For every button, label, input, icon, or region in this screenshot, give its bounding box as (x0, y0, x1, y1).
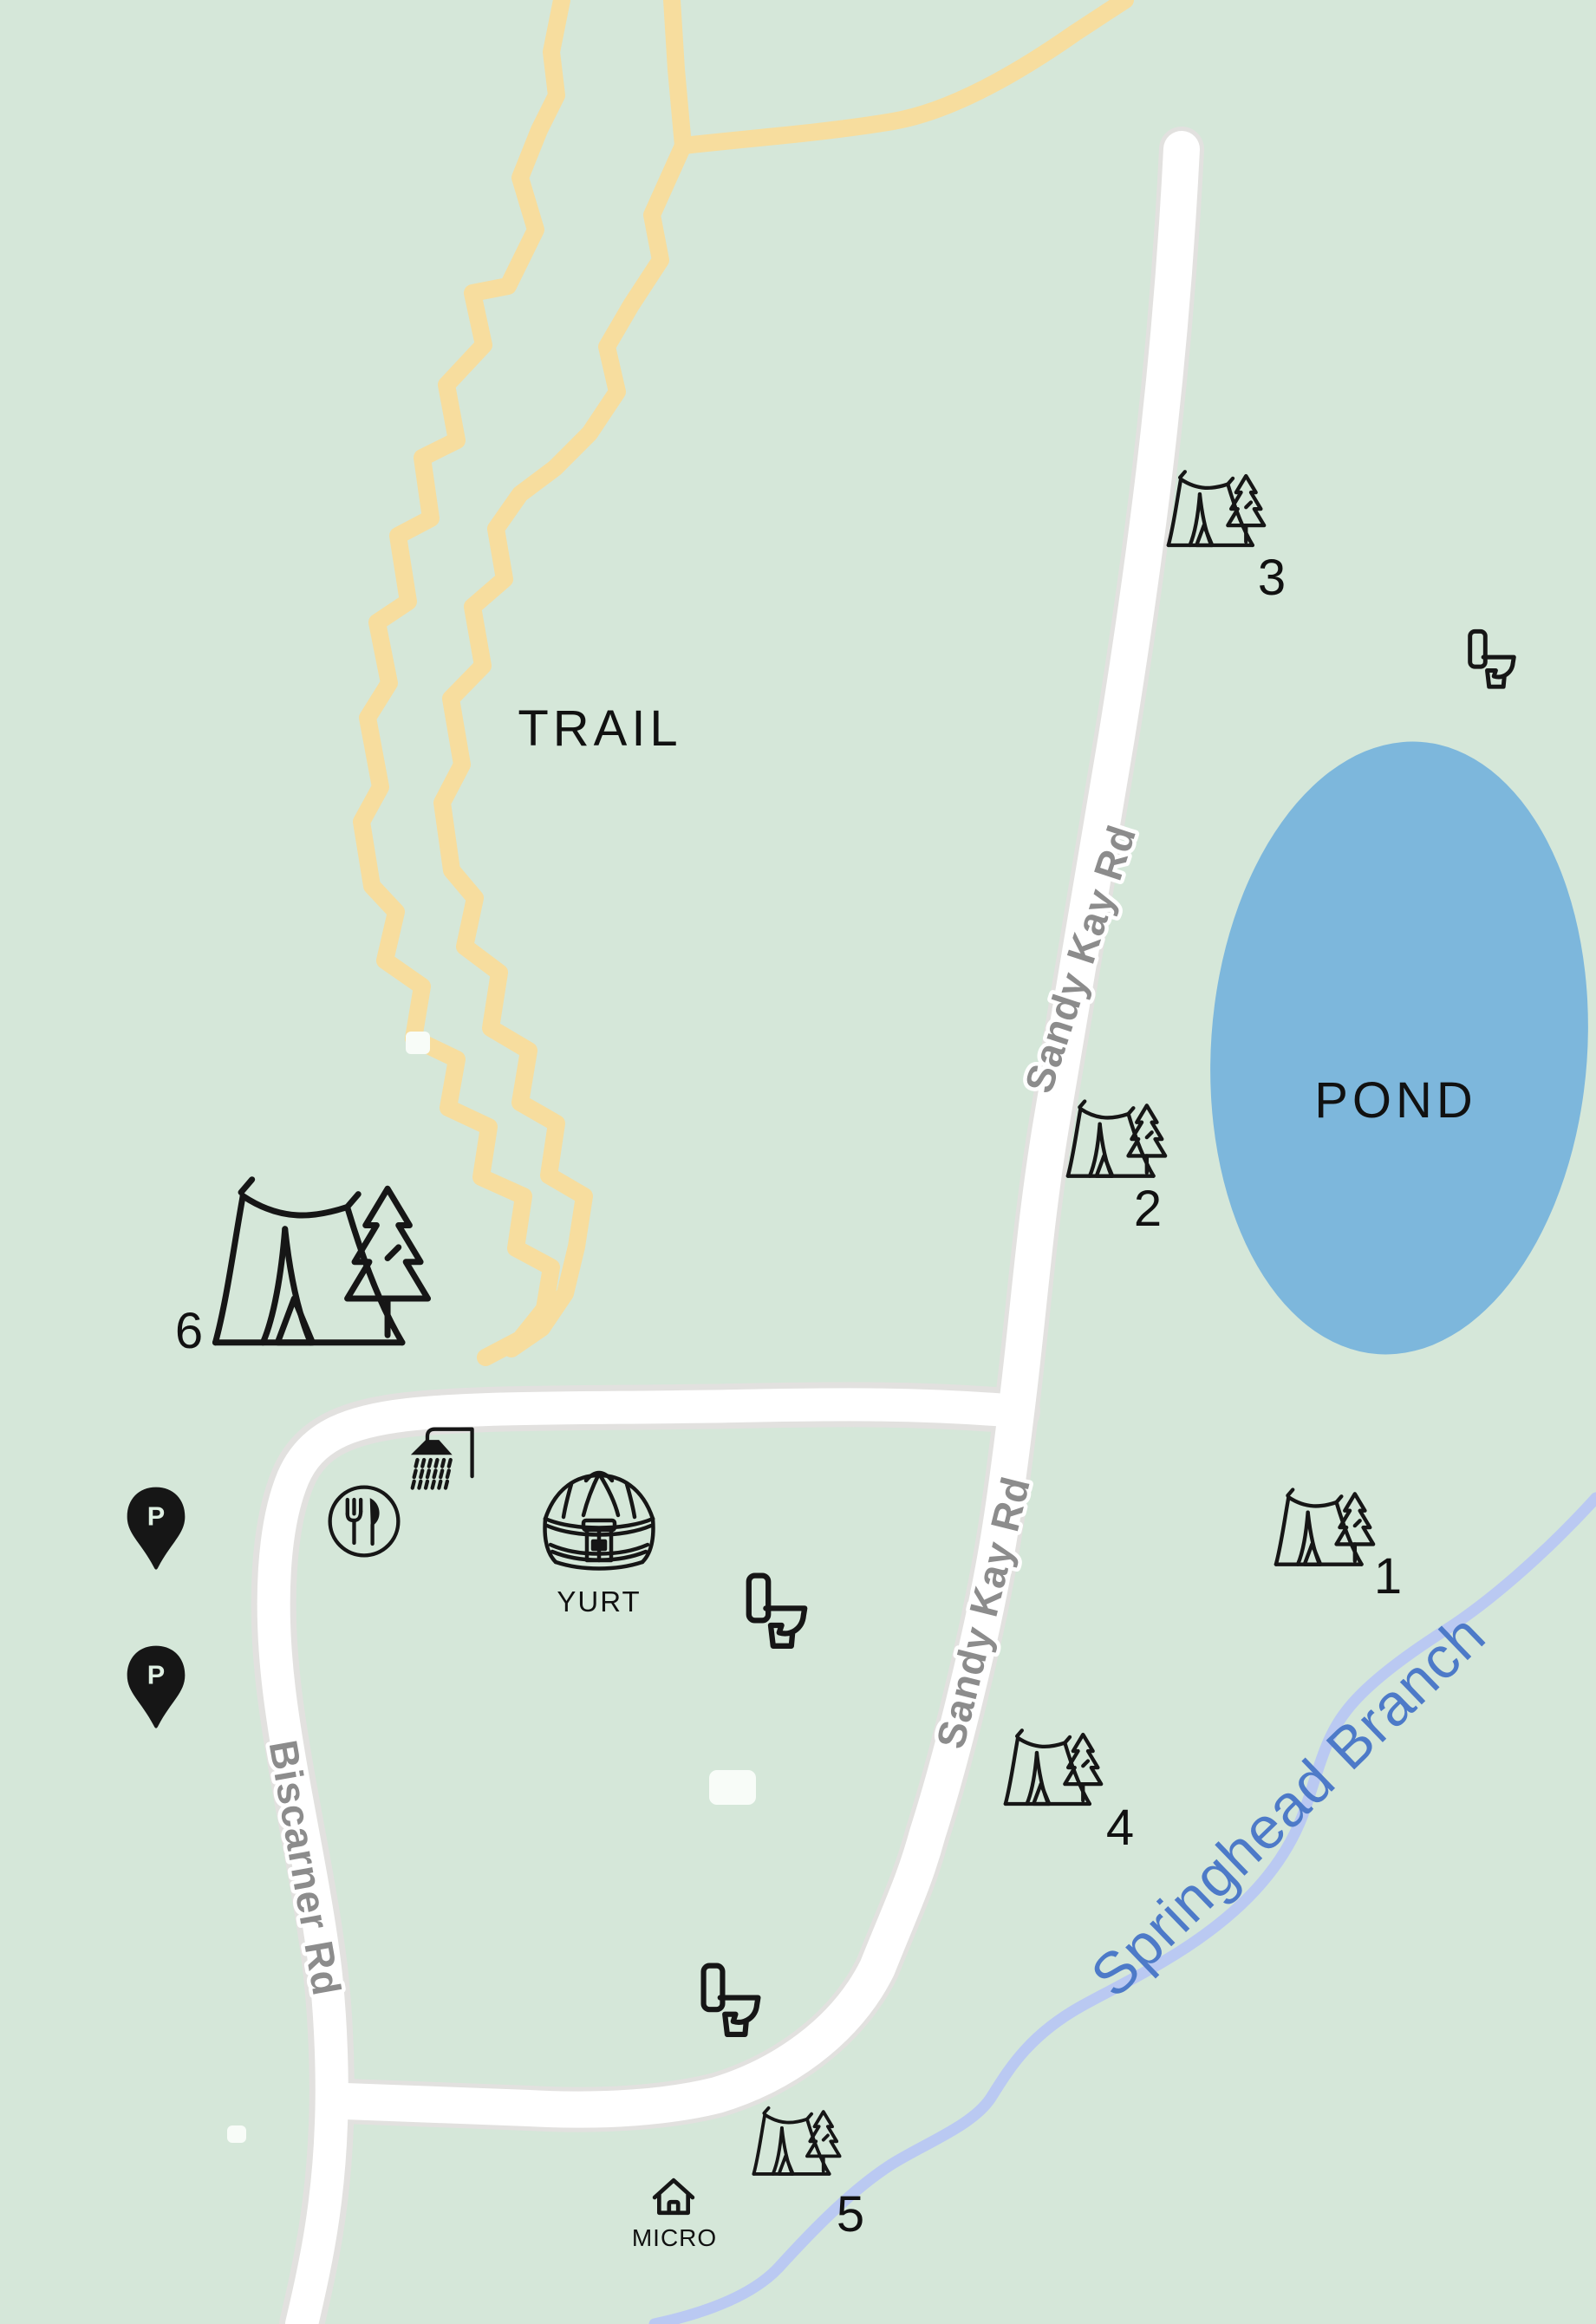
campsite-1-number: 1 (1374, 1552, 1402, 1602)
trail-branch-north (672, 0, 683, 146)
yurt-label: YURT (557, 1587, 641, 1616)
road-label-biscarner: Biscarner Rd (260, 1737, 349, 2000)
stream-label-springhead-branch: Springhead Branch (1078, 1602, 1498, 2010)
trail-branch-northeast (683, 0, 1125, 146)
campsite-3-tent-icon (1165, 468, 1267, 553)
parking-pin-icon-upper (121, 1485, 191, 1575)
campsite-2-tent-icon (1065, 1097, 1169, 1184)
toilet-icon-south (695, 1961, 766, 2044)
trail-area-label: TRAIL (518, 704, 681, 754)
campsite-6-number: 6 (175, 1306, 203, 1357)
yurt-icon (538, 1463, 660, 1576)
campsite-2-number: 2 (1134, 1184, 1162, 1234)
campsite-1-tent-icon (1273, 1486, 1377, 1572)
campsite-5-number: 5 (837, 2190, 864, 2240)
hiking-trail (362, 0, 1125, 1357)
shower-icon (404, 1423, 487, 1498)
micro-cabin-label: MICRO (632, 2226, 717, 2250)
sandy-kay-road (345, 149, 1182, 2110)
campsite-4-tent-icon (1002, 1727, 1104, 1812)
campground-map: Sandy Kay Rd Sandy Kay Rd Biscarner Rd S… (0, 0, 1596, 2324)
campsite-5-tent-icon (751, 2105, 843, 2181)
pond-area-label: POND (1314, 1076, 1477, 1126)
campsite-6-tent-icon (208, 1172, 435, 1359)
toilet-icon-northeast (1463, 628, 1521, 694)
toilet-icon-central (740, 1571, 813, 1656)
parking-pin-icon-lower (121, 1644, 191, 1734)
pond-shape (1190, 729, 1596, 1368)
map-canvas: Sandy Kay Rd Sandy Kay Rd Biscarner Rd S… (0, 0, 1596, 2324)
restaurant-icon (322, 1480, 406, 1563)
campsite-4-number: 4 (1106, 1803, 1134, 1853)
campsite-3-number: 3 (1258, 553, 1286, 603)
micro-cabin-icon (652, 2178, 695, 2216)
